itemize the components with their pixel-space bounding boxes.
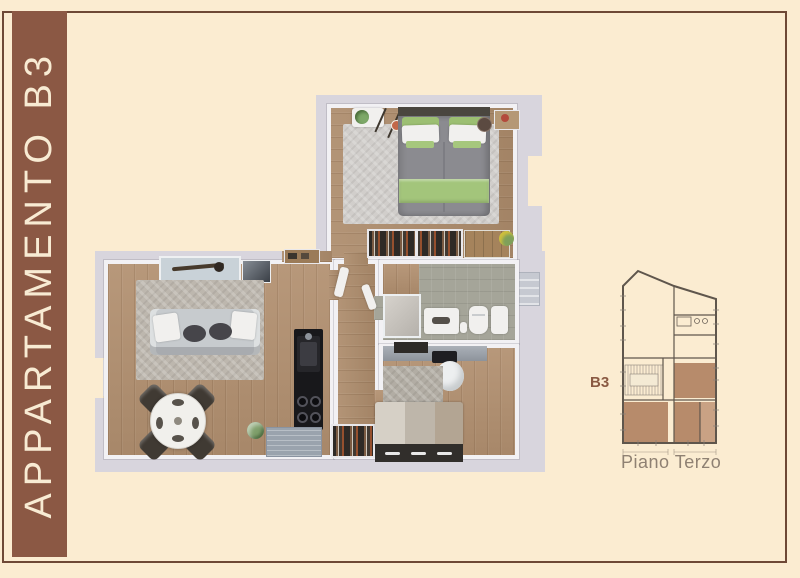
- vanity-basin: [432, 317, 450, 324]
- hallway-closet: [331, 424, 375, 458]
- door-opening-bedroom-hall: [344, 252, 368, 266]
- radiator: [518, 272, 540, 306]
- cooktop-burner: [297, 412, 308, 423]
- sofa-pillow-left: [152, 312, 181, 342]
- bathroom-wood-strip: [383, 264, 419, 294]
- cooktop-burner: [310, 396, 321, 407]
- toilet-lid-line: [472, 314, 485, 316]
- drawer-handle: [385, 452, 400, 455]
- table-centerpiece: [174, 417, 182, 425]
- sofa-pillow-right: [230, 311, 258, 340]
- floor-plant: [247, 422, 264, 439]
- pillow-band-right: [453, 141, 481, 148]
- toilet: [469, 306, 488, 334]
- console-decor-item: [301, 253, 309, 259]
- drawer-handle: [437, 452, 452, 455]
- keyplan-kitchen-fixtures: [677, 317, 708, 326]
- nightstand-decor: [501, 114, 509, 122]
- cooktop-burner: [297, 396, 308, 407]
- keyplan-caption: Piano Terzo: [621, 452, 721, 473]
- keyplan-schematic: [608, 266, 720, 462]
- place-setting: [156, 417, 163, 429]
- bed2: [375, 402, 463, 446]
- dresser2: [375, 444, 463, 462]
- sink-bowl: [300, 342, 317, 366]
- sofa-cushion-right: [209, 323, 232, 340]
- pillow-band-left: [406, 141, 434, 148]
- bed2-pillow: [435, 402, 463, 446]
- bedroom-wardrobe: [367, 229, 463, 258]
- doormat: [266, 427, 322, 457]
- drawer-handle: [411, 452, 426, 455]
- potted-plant: [355, 110, 369, 124]
- desk-shelf: [394, 342, 428, 353]
- corridor-console: [284, 249, 320, 264]
- console-decor-item: [288, 253, 297, 259]
- place-setting: [172, 435, 184, 442]
- soap-bottle: [460, 322, 467, 333]
- bed-green-throw: [399, 179, 489, 203]
- kitchen-island: [294, 329, 323, 430]
- wall-clock-right: [477, 117, 492, 132]
- bed2-sheet: [375, 402, 405, 446]
- window-notch-right: [528, 156, 545, 206]
- brochure-page: APPARTAMENTO B3: [0, 0, 800, 578]
- bed2-blanket: [405, 402, 435, 446]
- wardrobe-divider: [415, 231, 418, 256]
- bidet: [491, 306, 508, 334]
- cooktop-burner: [310, 412, 321, 423]
- guitar-body: [214, 262, 224, 272]
- place-setting: [192, 417, 199, 429]
- sunflower-plant: [499, 231, 514, 246]
- place-setting: [172, 399, 184, 406]
- shower: [383, 294, 421, 338]
- keyplan-label: B3: [590, 374, 609, 391]
- bathroom-vanity: [424, 308, 459, 334]
- keyplan-stairwell: [625, 365, 663, 395]
- sofa-cushion-left: [183, 325, 206, 342]
- faucet: [305, 333, 312, 340]
- dining-table: [150, 393, 206, 449]
